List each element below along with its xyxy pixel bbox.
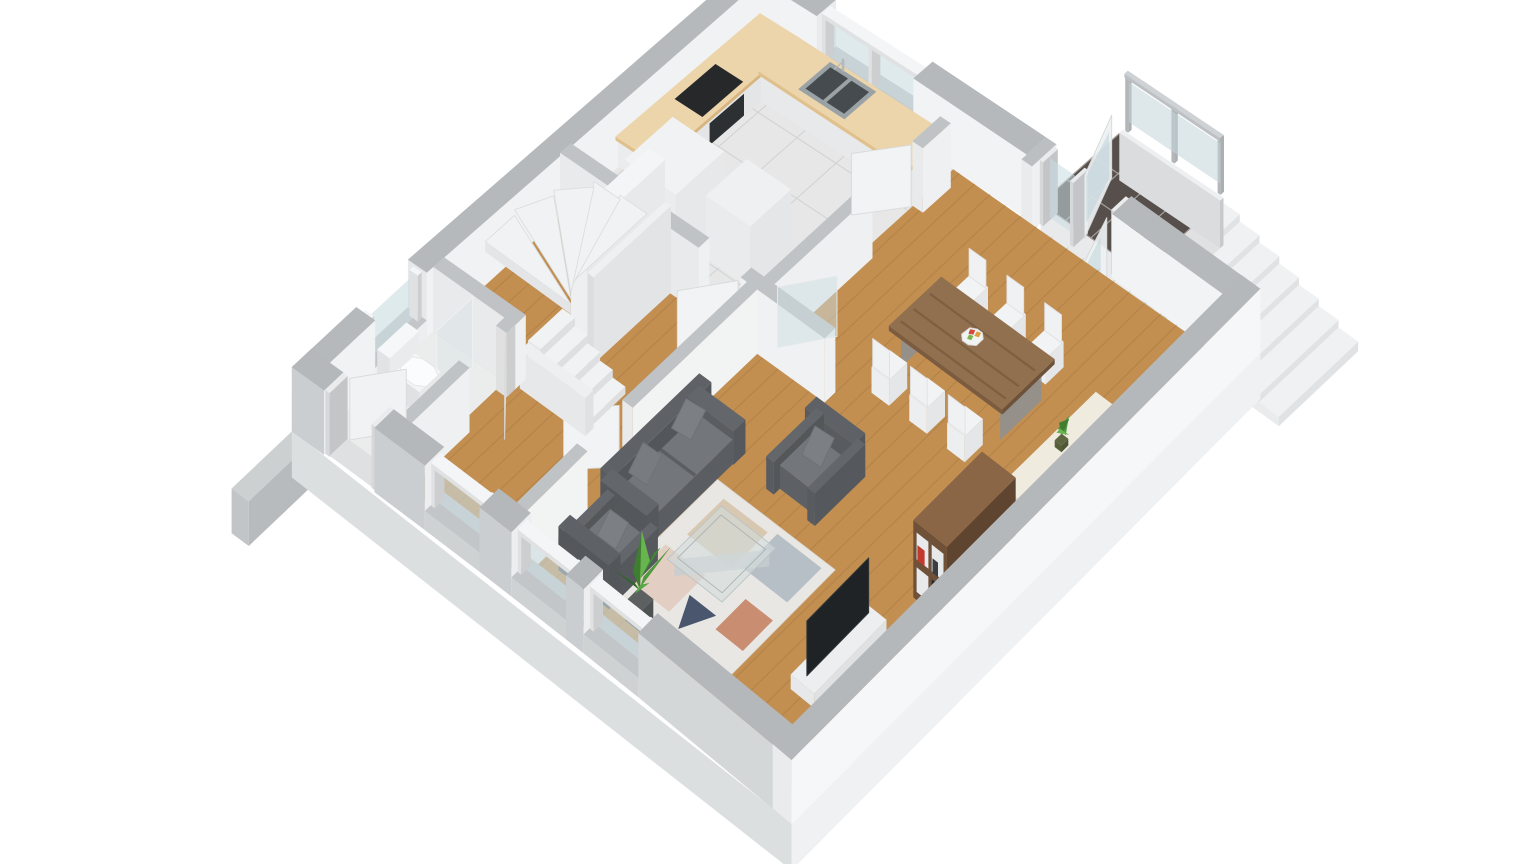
floor-plan-canvas [0, 0, 1536, 864]
floor-plan-3d-render [0, 0, 1536, 864]
